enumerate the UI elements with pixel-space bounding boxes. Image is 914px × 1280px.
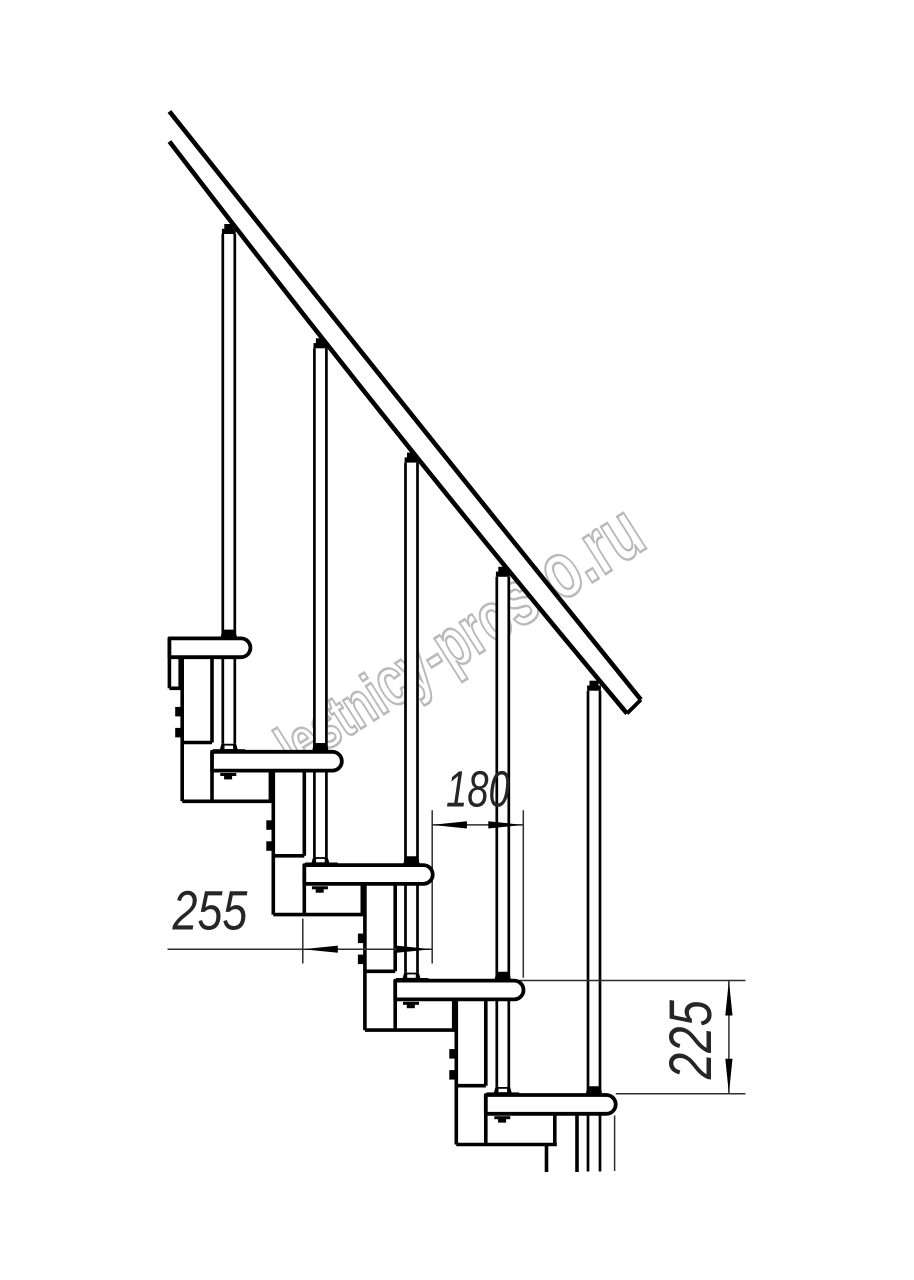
svg-text:255: 255 — [172, 879, 248, 941]
svg-text:225: 225 — [657, 1000, 724, 1081]
svg-text:180: 180 — [446, 761, 510, 818]
